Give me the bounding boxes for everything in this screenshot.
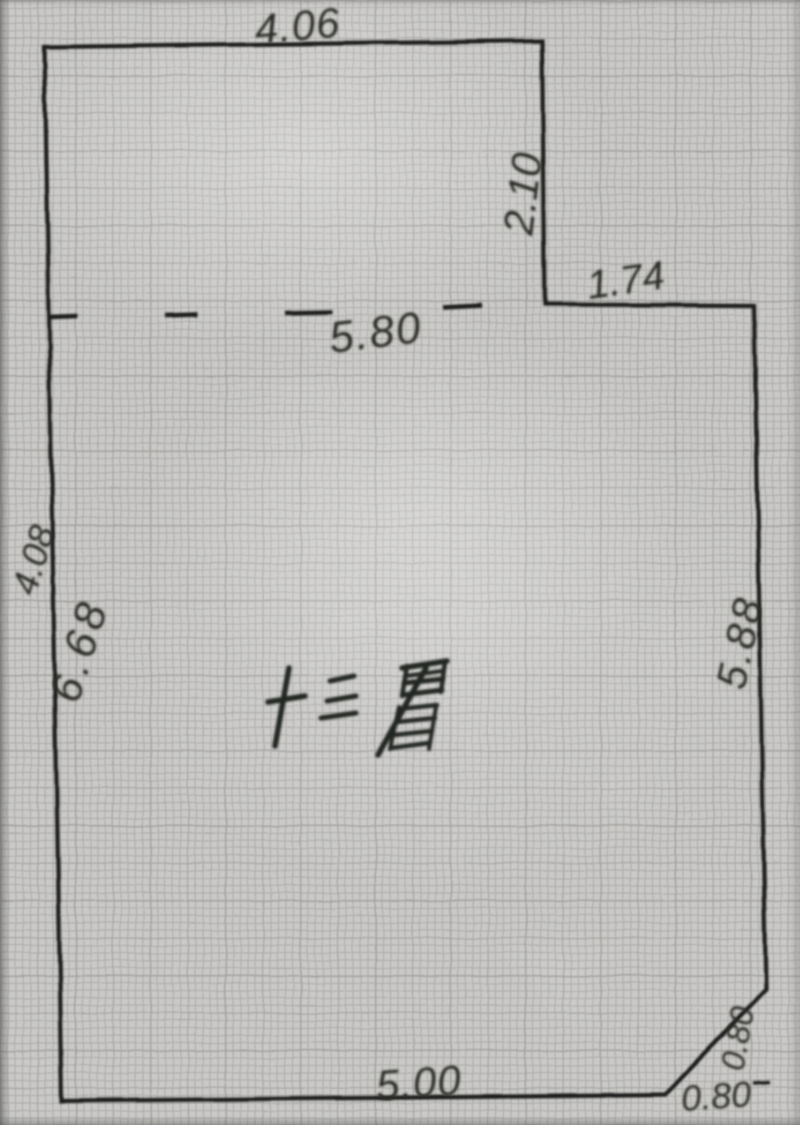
svg-text:0.80: 0.80 <box>713 1003 761 1073</box>
svg-text:1.74: 1.74 <box>584 254 667 308</box>
svg-text:0.80: 0.80 <box>680 1073 753 1119</box>
svg-text:4.06: 4.06 <box>253 0 343 53</box>
svg-text:5.00: 5.00 <box>374 1056 463 1109</box>
svg-text:5.80: 5.80 <box>326 303 425 363</box>
